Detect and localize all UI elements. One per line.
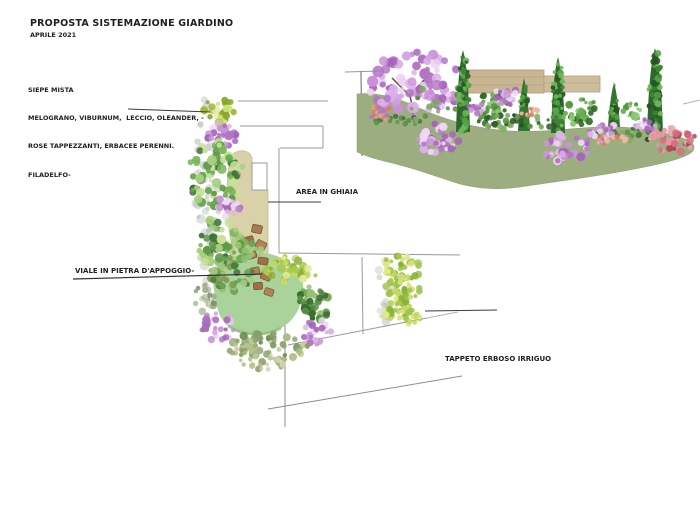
white-structure (252, 163, 267, 190)
page-title: PROPOSTA SISTEMAZIONE GIARDINO (30, 17, 233, 31)
tappeto-erboso-label: TAPPETO ERBOSO IRRIGUO (445, 354, 551, 364)
tappeto-callout-line (425, 310, 497, 311)
page-subtitle: APRILE 2021 (30, 31, 76, 40)
garden-wall (468, 70, 600, 93)
garden-proposal-page: PROPOSTA SISTEMAZIONE GIARDINO APRILE 20… (0, 0, 700, 525)
viale-pietra-label: VIALE IN PIETRA D'APPOGGIO- (75, 266, 194, 276)
siepe-line-3: ROSE TAPPEZZANTI, ERBACEE PERENNI. (28, 142, 204, 151)
siepe-line-4: FILADELFO- (28, 171, 204, 180)
area-ghiaia-label: AREA IN GHIAIA (296, 187, 358, 197)
siepe-line-2: MELOGRANO, VIBURNUM, LECCIO, OLEANDER, - (28, 114, 204, 123)
siepe-mista-label: SIEPE MISTA MELOGRANO, VIBURNUM, LECCIO,… (28, 67, 204, 199)
siepe-line-1: SIEPE MISTA (28, 86, 204, 95)
